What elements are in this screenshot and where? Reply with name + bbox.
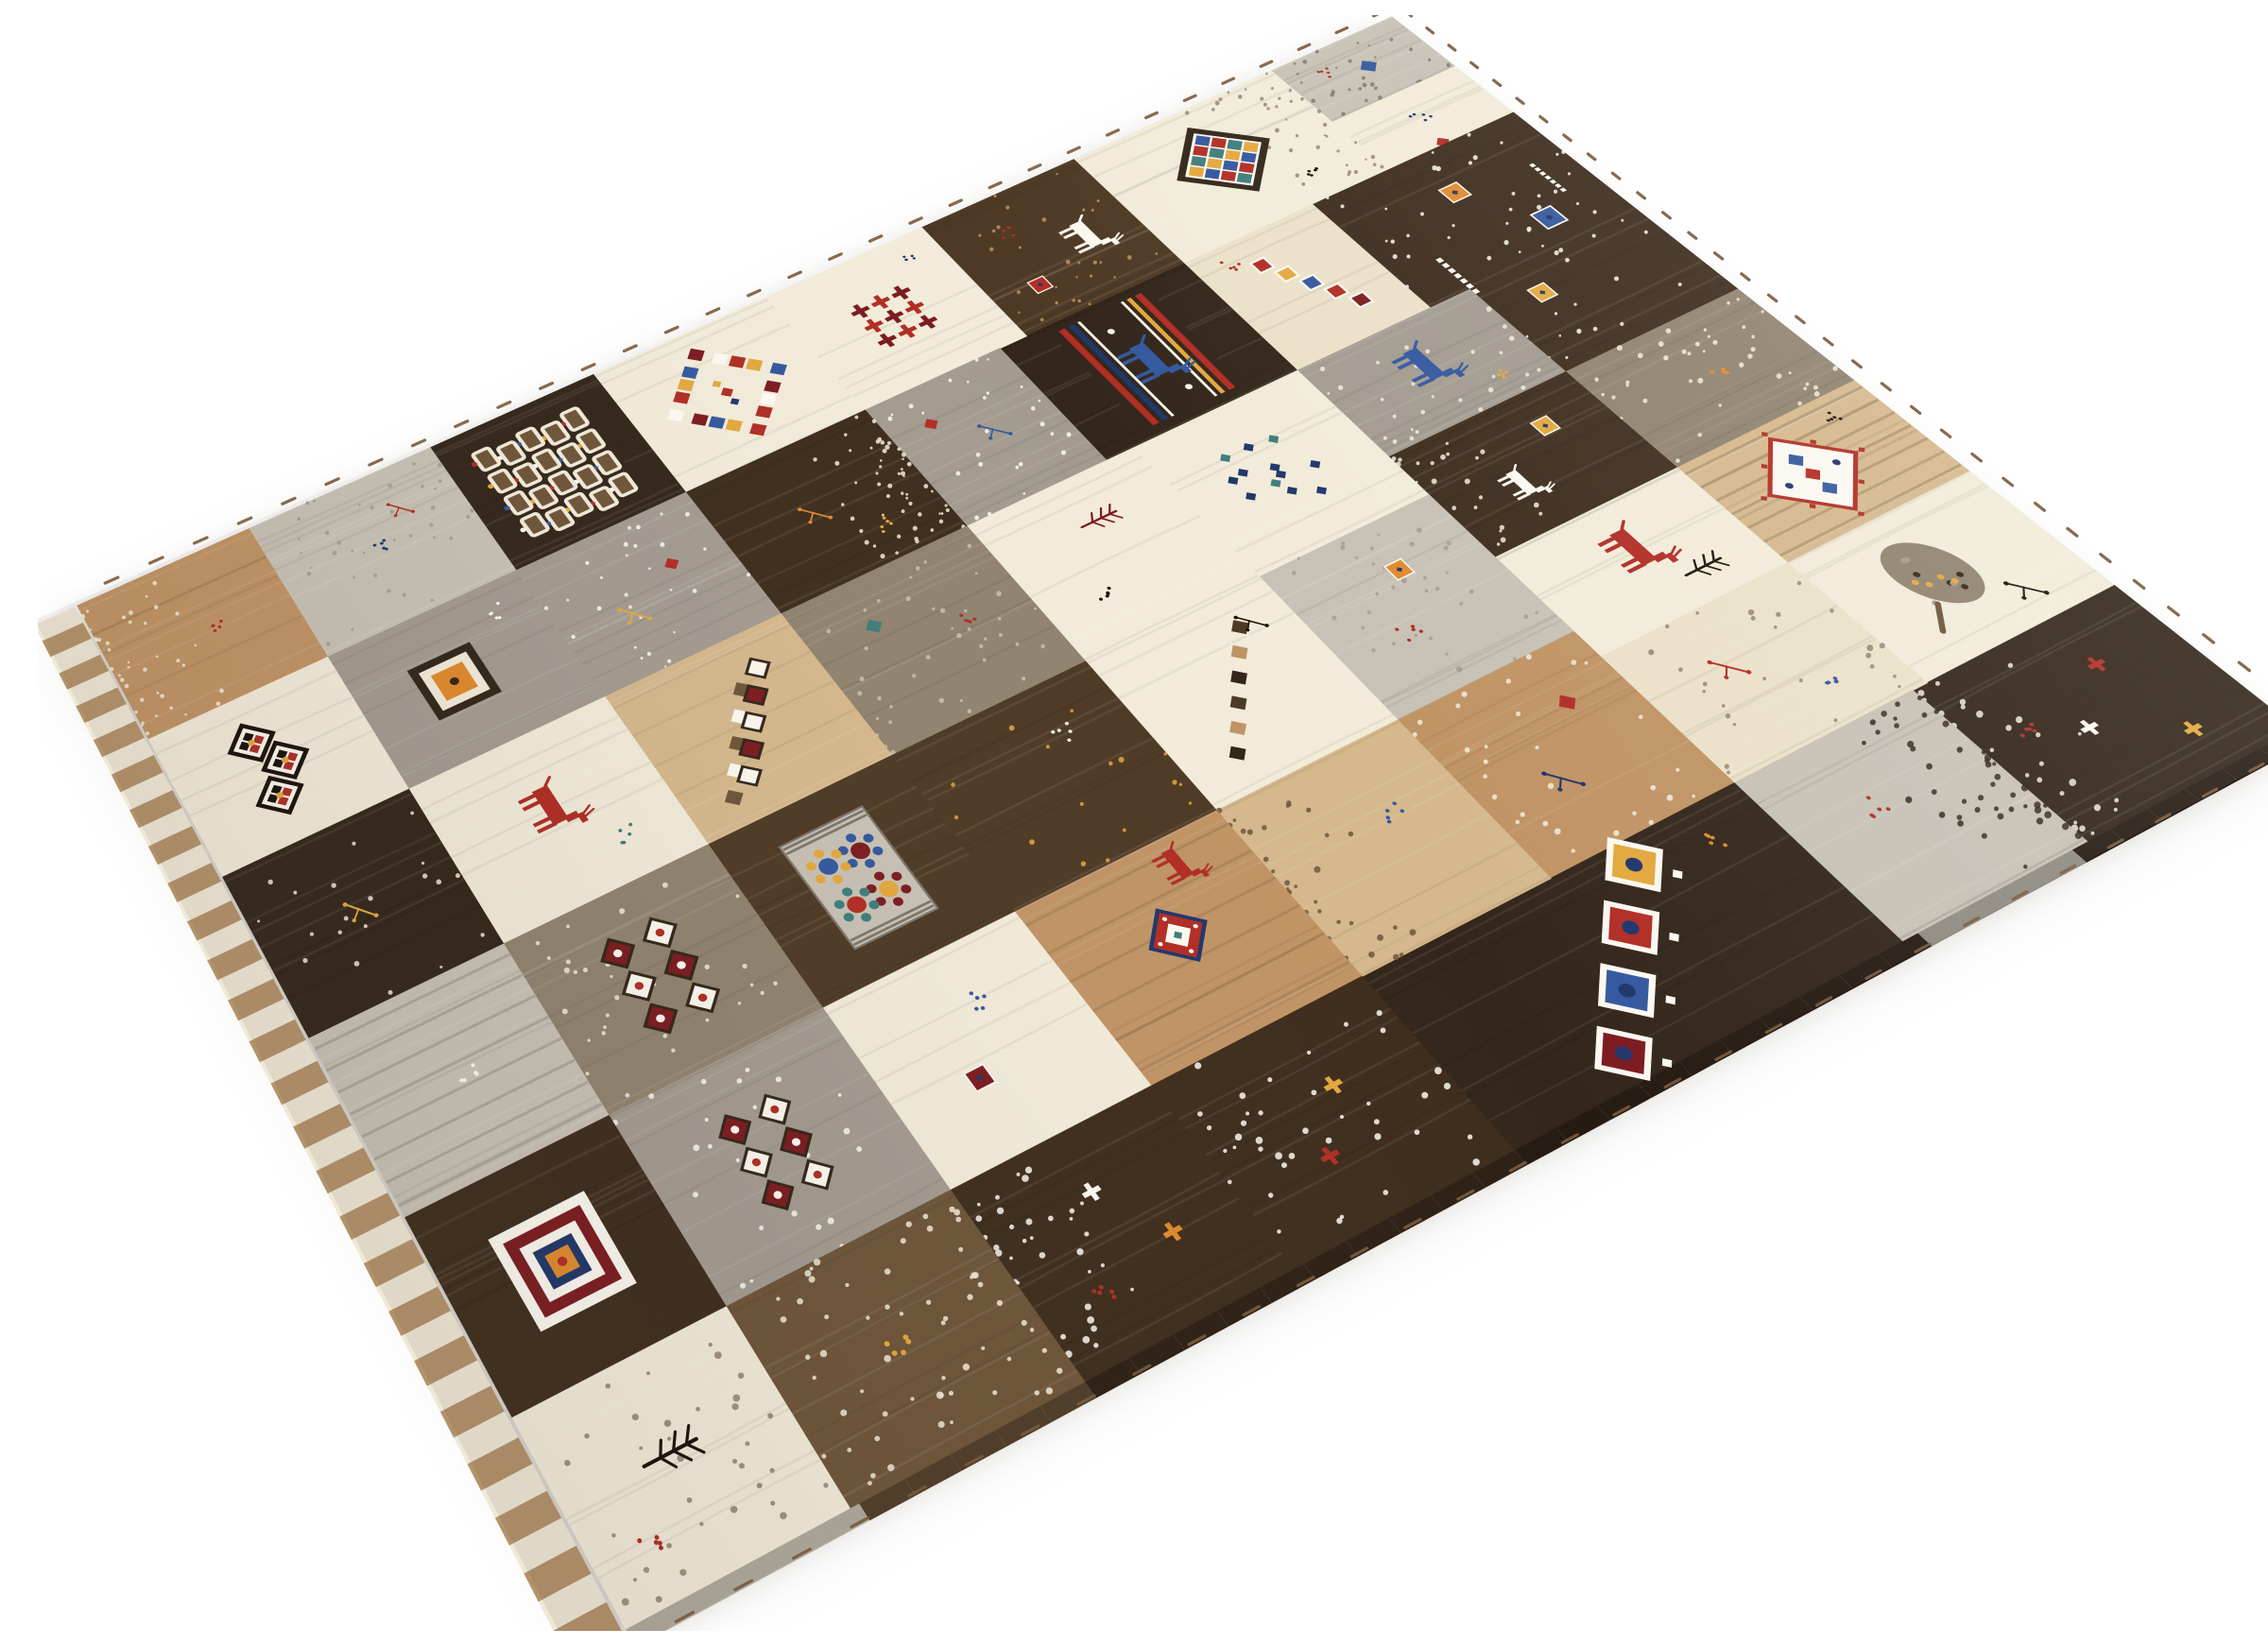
rug-patches — [77, 17, 2268, 1629]
rug-photo-figure: Hand-knotted patchwork Gabbeh-style wool… — [38, 15, 2268, 1631]
rug-photo — [38, 15, 2268, 1631]
